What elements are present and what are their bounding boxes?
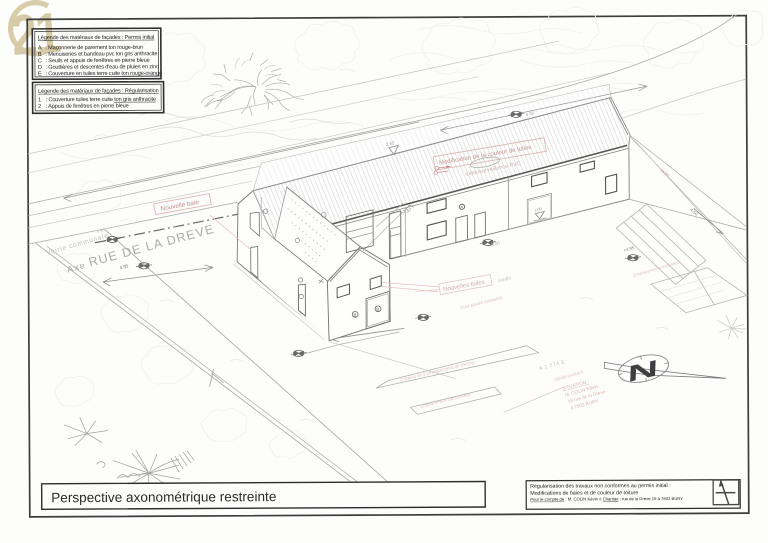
svg-text:C: C — [38, 58, 42, 64]
svg-text:: Menuiseries et bandeau pvc t: : Menuiseries et bandeau pvc ton gris an… — [45, 51, 157, 58]
svg-text:B: B — [353, 312, 356, 317]
svg-text:A: A — [460, 205, 463, 210]
svg-text:: Seuils et appuis de fenêtres: : Seuils et appuis de fenêtres en pierre… — [45, 58, 149, 65]
svg-text:: Appuis de fenêtres en pierre: : Appuis de fenêtres en pierre bleue — [46, 103, 129, 109]
svg-text:: Maçonnerie de parement ton r: : Maçonnerie de parement ton rouge-brun — [45, 45, 143, 52]
svg-text:A: A — [38, 45, 42, 51]
svg-text:: Couverture tuiles terre cuit: : Couverture tuiles terre cuite ton gris… — [46, 97, 156, 104]
svg-text:Légende des matériaux de façad: Légende des matériaux de façades : Régul… — [38, 88, 159, 95]
svg-text:2: 2 — [38, 104, 41, 110]
svg-text:B: B — [376, 307, 379, 312]
svg-text:D: D — [38, 65, 42, 71]
svg-text:Pour le compte de : M. COLIN K: Pour le compte de : M. COLIN Kévin # Cha… — [530, 496, 683, 502]
svg-text:B: B — [38, 52, 42, 58]
svg-text:Perspective axonométrique rest: Perspective axonométrique restreinte — [51, 489, 276, 505]
svg-text:E: E — [38, 71, 42, 77]
svg-text:Régularisation des travaux non: Régularisation des travaux non conformes… — [530, 483, 670, 490]
svg-text:: Couverture en tuiles terre c: : Couverture en tuiles terre cuite ton r… — [45, 71, 161, 78]
svg-text:Légende des matériaux de façad: Légende des matériaux de façades : Permi… — [38, 35, 154, 42]
svg-text:1: 1 — [38, 97, 41, 103]
